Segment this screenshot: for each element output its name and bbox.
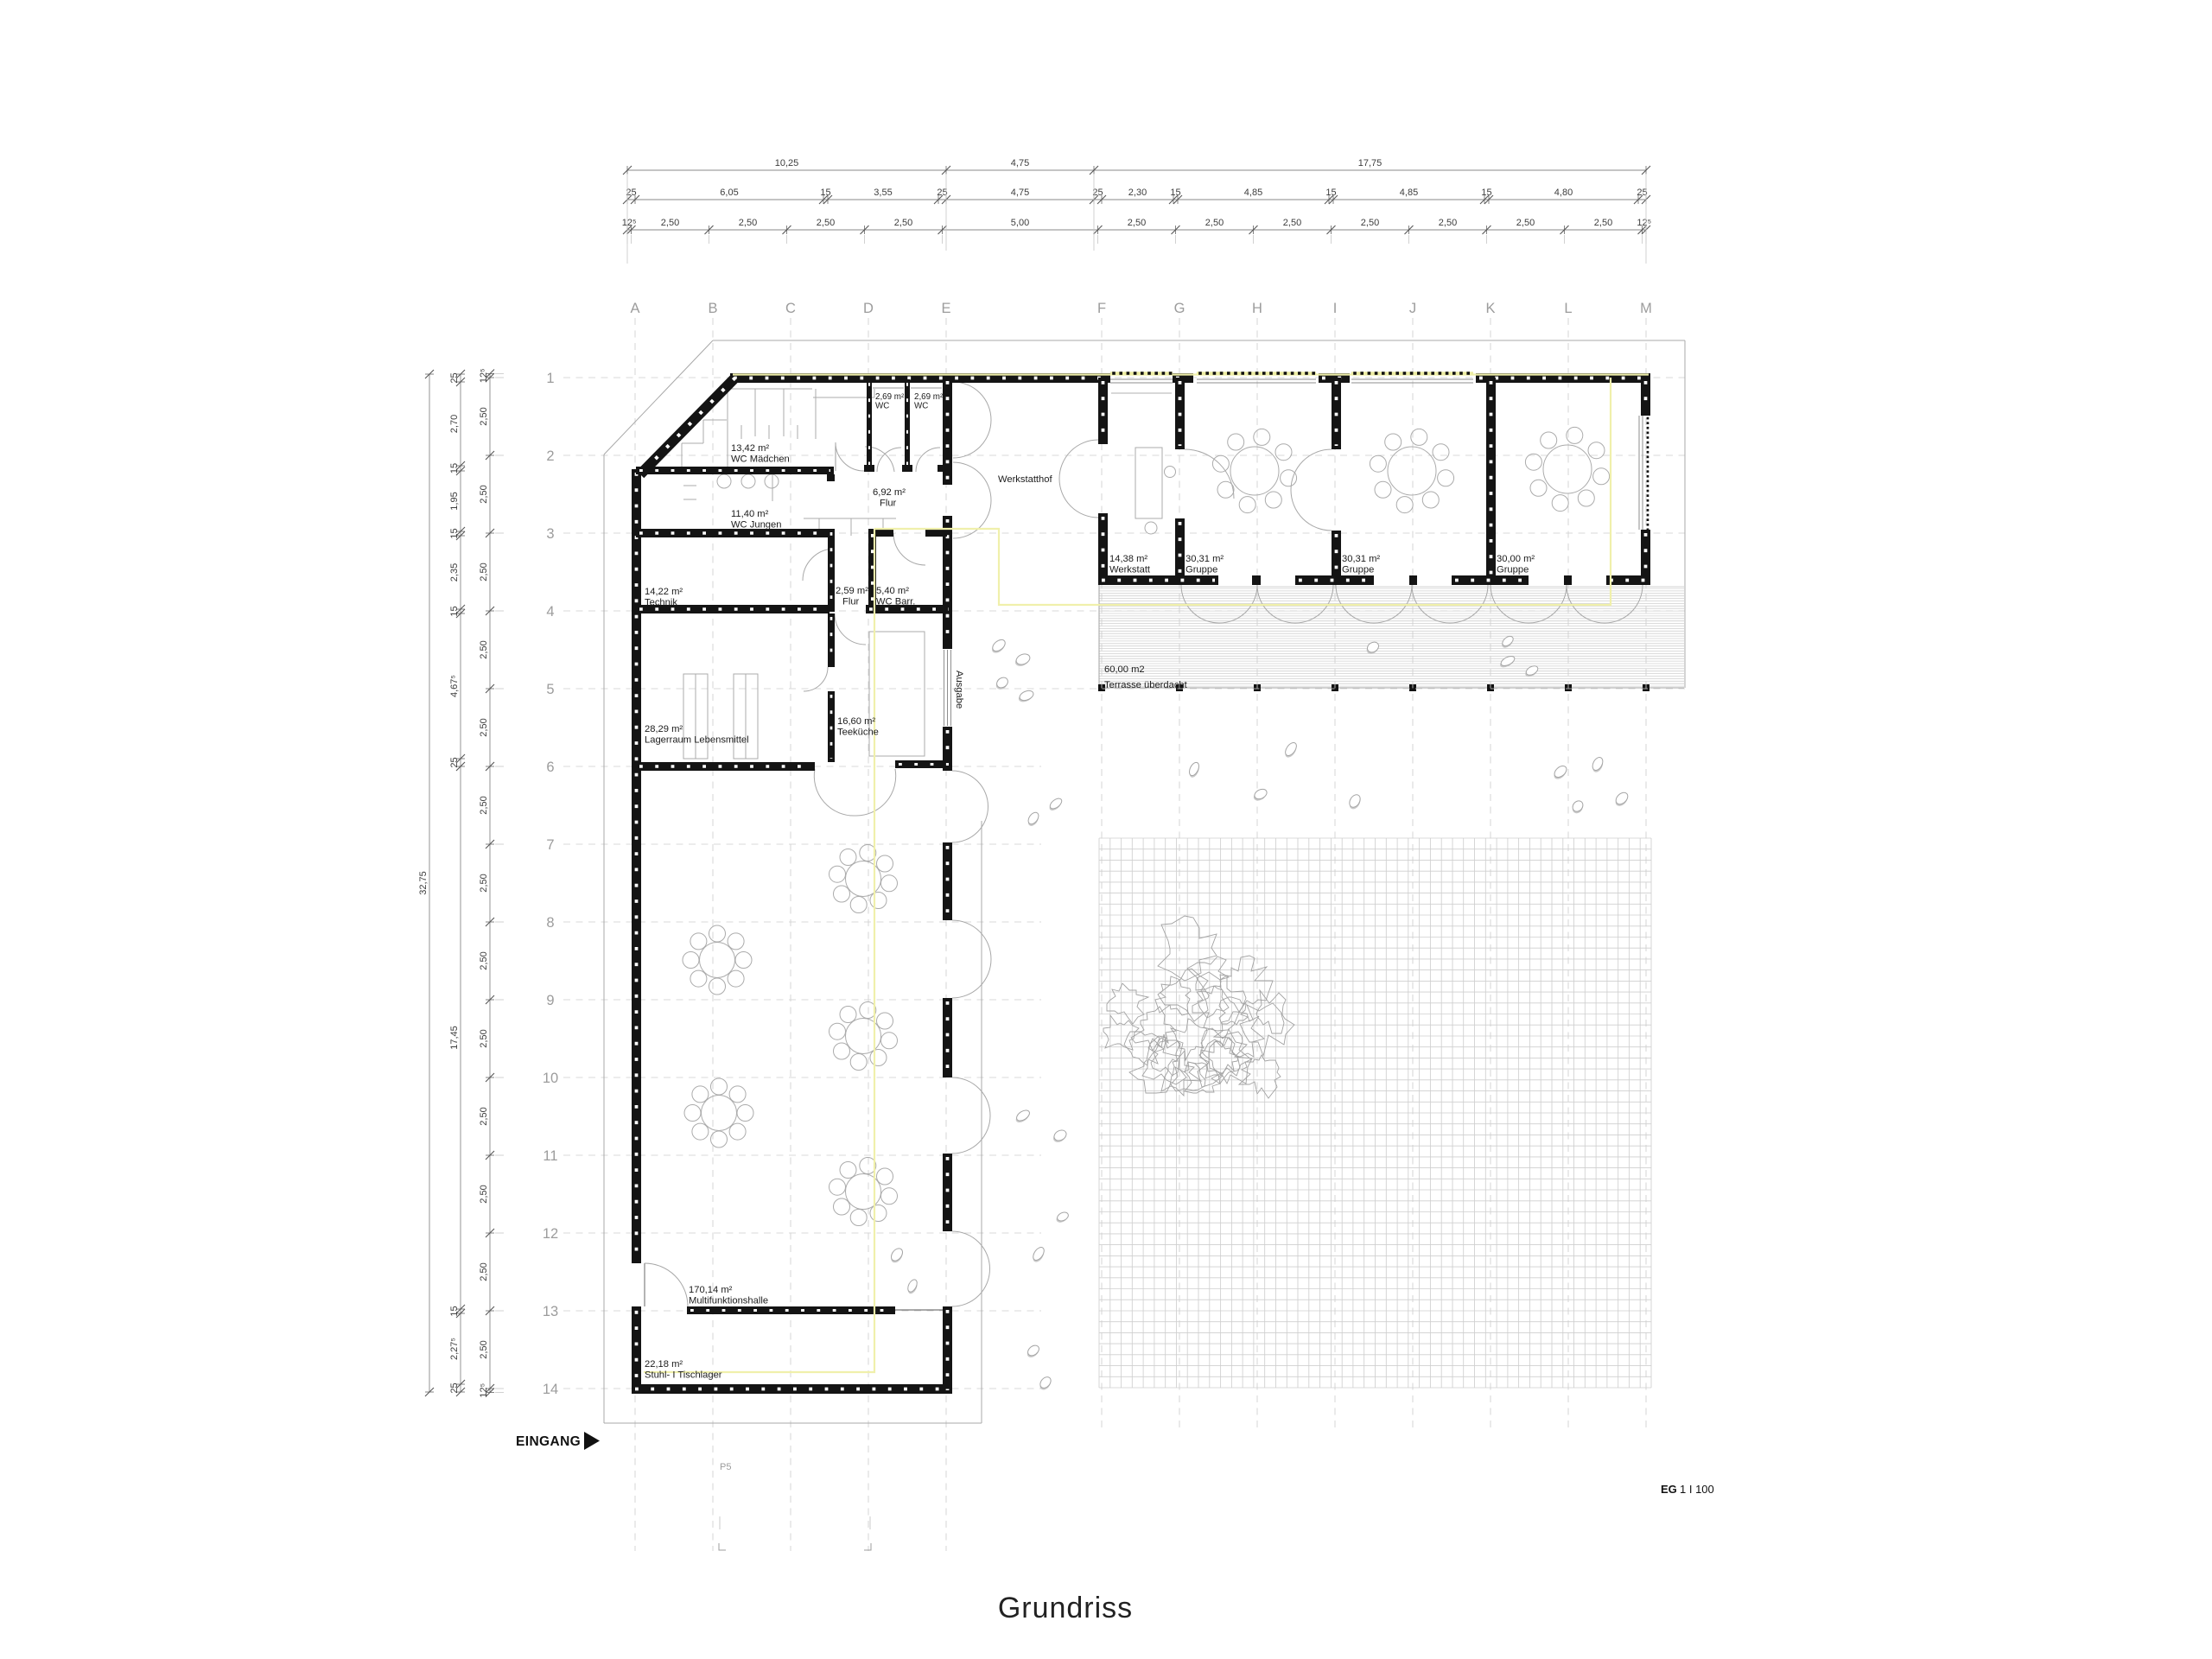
svg-text:8: 8 bbox=[546, 915, 554, 931]
svg-text:14,22 m²: 14,22 m² bbox=[645, 587, 683, 597]
svg-text:17,75: 17,75 bbox=[1358, 158, 1382, 168]
svg-text:2,50: 2,50 bbox=[661, 218, 679, 228]
svg-text:2,50: 2,50 bbox=[479, 1340, 489, 1358]
svg-text:Gruppe: Gruppe bbox=[1342, 565, 1374, 575]
svg-text:25: 25 bbox=[449, 1382, 460, 1393]
svg-text:15: 15 bbox=[449, 463, 460, 474]
svg-text:13,42 m²: 13,42 m² bbox=[731, 443, 769, 454]
svg-text:WC: WC bbox=[914, 402, 928, 411]
svg-text:Technik: Technik bbox=[645, 598, 677, 608]
svg-text:I: I bbox=[1333, 301, 1338, 316]
svg-text:12⁵: 12⁵ bbox=[1637, 218, 1651, 228]
svg-text:28,29 m²: 28,29 m² bbox=[645, 724, 683, 734]
svg-text:16,60 m²: 16,60 m² bbox=[837, 716, 875, 727]
svg-text:2,59 m²: 2,59 m² bbox=[836, 586, 868, 596]
svg-text:2,69 m²: 2,69 m² bbox=[875, 392, 905, 402]
svg-text:5,40 m²: 5,40 m² bbox=[876, 586, 909, 596]
svg-text:4,67⁵: 4,67⁵ bbox=[449, 675, 460, 697]
svg-text:2,50: 2,50 bbox=[479, 563, 489, 581]
svg-text:2,50: 2,50 bbox=[479, 874, 489, 892]
svg-text:K: K bbox=[1485, 301, 1495, 316]
svg-text:2,50: 2,50 bbox=[479, 796, 489, 814]
svg-text:2,50: 2,50 bbox=[479, 485, 489, 503]
svg-text:G: G bbox=[1174, 301, 1185, 316]
svg-text:22,18 m²: 22,18 m² bbox=[645, 1359, 683, 1370]
svg-text:Flur: Flur bbox=[842, 597, 860, 607]
svg-text:C: C bbox=[785, 301, 796, 316]
svg-text:12: 12 bbox=[543, 1226, 558, 1242]
svg-text:Ausgabe: Ausgabe bbox=[954, 671, 964, 709]
svg-text:2,50: 2,50 bbox=[479, 407, 489, 425]
svg-text:1 I 100: 1 I 100 bbox=[1680, 1483, 1714, 1496]
svg-text:2,50: 2,50 bbox=[1361, 218, 1379, 228]
svg-text:WC Barr.: WC Barr. bbox=[876, 597, 915, 607]
svg-text:14: 14 bbox=[543, 1382, 558, 1397]
svg-text:2,50: 2,50 bbox=[1283, 218, 1301, 228]
svg-text:2,50: 2,50 bbox=[479, 1262, 489, 1281]
svg-text:2,50: 2,50 bbox=[479, 951, 489, 969]
svg-text:WC: WC bbox=[875, 402, 889, 411]
svg-text:4: 4 bbox=[546, 604, 554, 620]
svg-text:2,50: 2,50 bbox=[479, 1107, 489, 1125]
svg-text:3: 3 bbox=[546, 526, 554, 542]
svg-text:60,00 m2: 60,00 m2 bbox=[1104, 664, 1145, 675]
svg-text:D: D bbox=[863, 301, 874, 316]
svg-text:2,50: 2,50 bbox=[479, 1029, 489, 1047]
svg-text:2,30: 2,30 bbox=[1128, 188, 1147, 198]
svg-text:EG: EG bbox=[1661, 1483, 1677, 1496]
svg-text:12⁵: 12⁵ bbox=[622, 218, 637, 228]
svg-text:30,00 m²: 30,00 m² bbox=[1497, 554, 1535, 564]
svg-text:Werkstatt: Werkstatt bbox=[1109, 565, 1151, 575]
svg-text:EINGANG: EINGANG bbox=[516, 1434, 581, 1449]
svg-text:14,38 m²: 14,38 m² bbox=[1109, 554, 1147, 564]
svg-text:15: 15 bbox=[449, 606, 460, 616]
svg-text:4,80: 4,80 bbox=[1554, 188, 1573, 198]
svg-text:4,85: 4,85 bbox=[1400, 188, 1418, 198]
svg-text:4,85: 4,85 bbox=[1244, 188, 1262, 198]
svg-text:B: B bbox=[708, 301, 717, 316]
svg-text:E: E bbox=[941, 301, 950, 316]
svg-text:Multifunktionshalle: Multifunktionshalle bbox=[689, 1296, 768, 1306]
svg-text:10,25: 10,25 bbox=[775, 158, 799, 168]
svg-text:11: 11 bbox=[543, 1148, 557, 1164]
svg-text:10: 10 bbox=[543, 1071, 558, 1086]
svg-text:L: L bbox=[1564, 301, 1572, 316]
svg-text:2,50: 2,50 bbox=[1516, 218, 1535, 228]
svg-text:Stuhl- I Tischlager: Stuhl- I Tischlager bbox=[645, 1370, 722, 1381]
svg-text:M: M bbox=[1640, 301, 1652, 316]
svg-text:J: J bbox=[1409, 301, 1416, 316]
svg-text:2,50: 2,50 bbox=[1439, 218, 1457, 228]
svg-text:1: 1 bbox=[546, 371, 554, 386]
svg-text:15: 15 bbox=[1481, 188, 1491, 198]
svg-text:3,55: 3,55 bbox=[874, 188, 892, 198]
svg-text:WC Jungen: WC Jungen bbox=[731, 520, 781, 531]
svg-text:30,31 m²: 30,31 m² bbox=[1342, 554, 1380, 564]
svg-text:2,50: 2,50 bbox=[1594, 218, 1612, 228]
svg-text:P5: P5 bbox=[720, 1462, 731, 1472]
svg-text:5,00: 5,00 bbox=[1011, 218, 1029, 228]
svg-text:12⁵: 12⁵ bbox=[479, 368, 489, 383]
svg-text:6,92 m²: 6,92 m² bbox=[873, 487, 906, 498]
svg-text:2,35: 2,35 bbox=[449, 563, 460, 582]
svg-text:15: 15 bbox=[1170, 188, 1180, 198]
svg-text:9: 9 bbox=[546, 993, 554, 1008]
svg-text:H: H bbox=[1252, 301, 1262, 316]
svg-text:30,31 m²: 30,31 m² bbox=[1185, 554, 1224, 564]
svg-text:11,40 m²: 11,40 m² bbox=[731, 509, 769, 519]
svg-text:12⁵: 12⁵ bbox=[479, 1383, 489, 1398]
svg-text:2,50: 2,50 bbox=[1205, 218, 1224, 228]
svg-text:15: 15 bbox=[820, 188, 830, 198]
svg-text:2,50: 2,50 bbox=[1128, 218, 1146, 228]
svg-text:15: 15 bbox=[449, 1306, 460, 1316]
svg-text:2,70: 2,70 bbox=[449, 415, 460, 433]
svg-text:25: 25 bbox=[449, 757, 460, 767]
svg-text:15: 15 bbox=[1325, 188, 1336, 198]
svg-text:5: 5 bbox=[546, 682, 554, 697]
svg-text:A: A bbox=[630, 301, 639, 316]
svg-text:Gruppe: Gruppe bbox=[1185, 565, 1217, 575]
svg-text:2,50: 2,50 bbox=[479, 718, 489, 736]
svg-text:WC Mädchen: WC Mädchen bbox=[731, 454, 790, 465]
svg-text:2,50: 2,50 bbox=[479, 640, 489, 658]
svg-text:Terrasse überdacht: Terrasse überdacht bbox=[1104, 680, 1188, 690]
svg-text:Gruppe: Gruppe bbox=[1497, 565, 1529, 575]
svg-text:4,75: 4,75 bbox=[1011, 188, 1029, 198]
svg-text:1,95: 1,95 bbox=[449, 492, 460, 510]
svg-text:4,75: 4,75 bbox=[1011, 158, 1029, 168]
svg-text:2,69 m²: 2,69 m² bbox=[914, 392, 944, 402]
svg-text:Grundriss: Grundriss bbox=[998, 1592, 1133, 1624]
svg-text:Lagerraum Lebensmittel: Lagerraum Lebensmittel bbox=[645, 735, 749, 746]
svg-text:7: 7 bbox=[546, 837, 554, 853]
svg-text:6: 6 bbox=[546, 760, 554, 775]
svg-text:F: F bbox=[1097, 301, 1106, 316]
svg-text:2: 2 bbox=[546, 448, 554, 464]
svg-text:6,05: 6,05 bbox=[720, 188, 738, 198]
svg-text:Teeküche: Teeküche bbox=[837, 728, 879, 738]
svg-text:17,45: 17,45 bbox=[449, 1026, 460, 1050]
svg-text:2,50: 2,50 bbox=[894, 218, 912, 228]
svg-text:32,75: 32,75 bbox=[418, 871, 429, 895]
svg-text:15: 15 bbox=[449, 528, 460, 538]
svg-text:170,14 m²: 170,14 m² bbox=[689, 1285, 733, 1295]
svg-text:2,50: 2,50 bbox=[817, 218, 835, 228]
svg-text:2,50: 2,50 bbox=[479, 1185, 489, 1203]
svg-text:Flur: Flur bbox=[880, 499, 897, 509]
svg-text:2,50: 2,50 bbox=[739, 218, 757, 228]
svg-text:2,27⁵: 2,27⁵ bbox=[449, 1338, 460, 1360]
svg-text:Werkstatthof: Werkstatthof bbox=[998, 474, 1052, 485]
svg-text:25: 25 bbox=[449, 372, 460, 383]
svg-text:13: 13 bbox=[543, 1304, 558, 1319]
